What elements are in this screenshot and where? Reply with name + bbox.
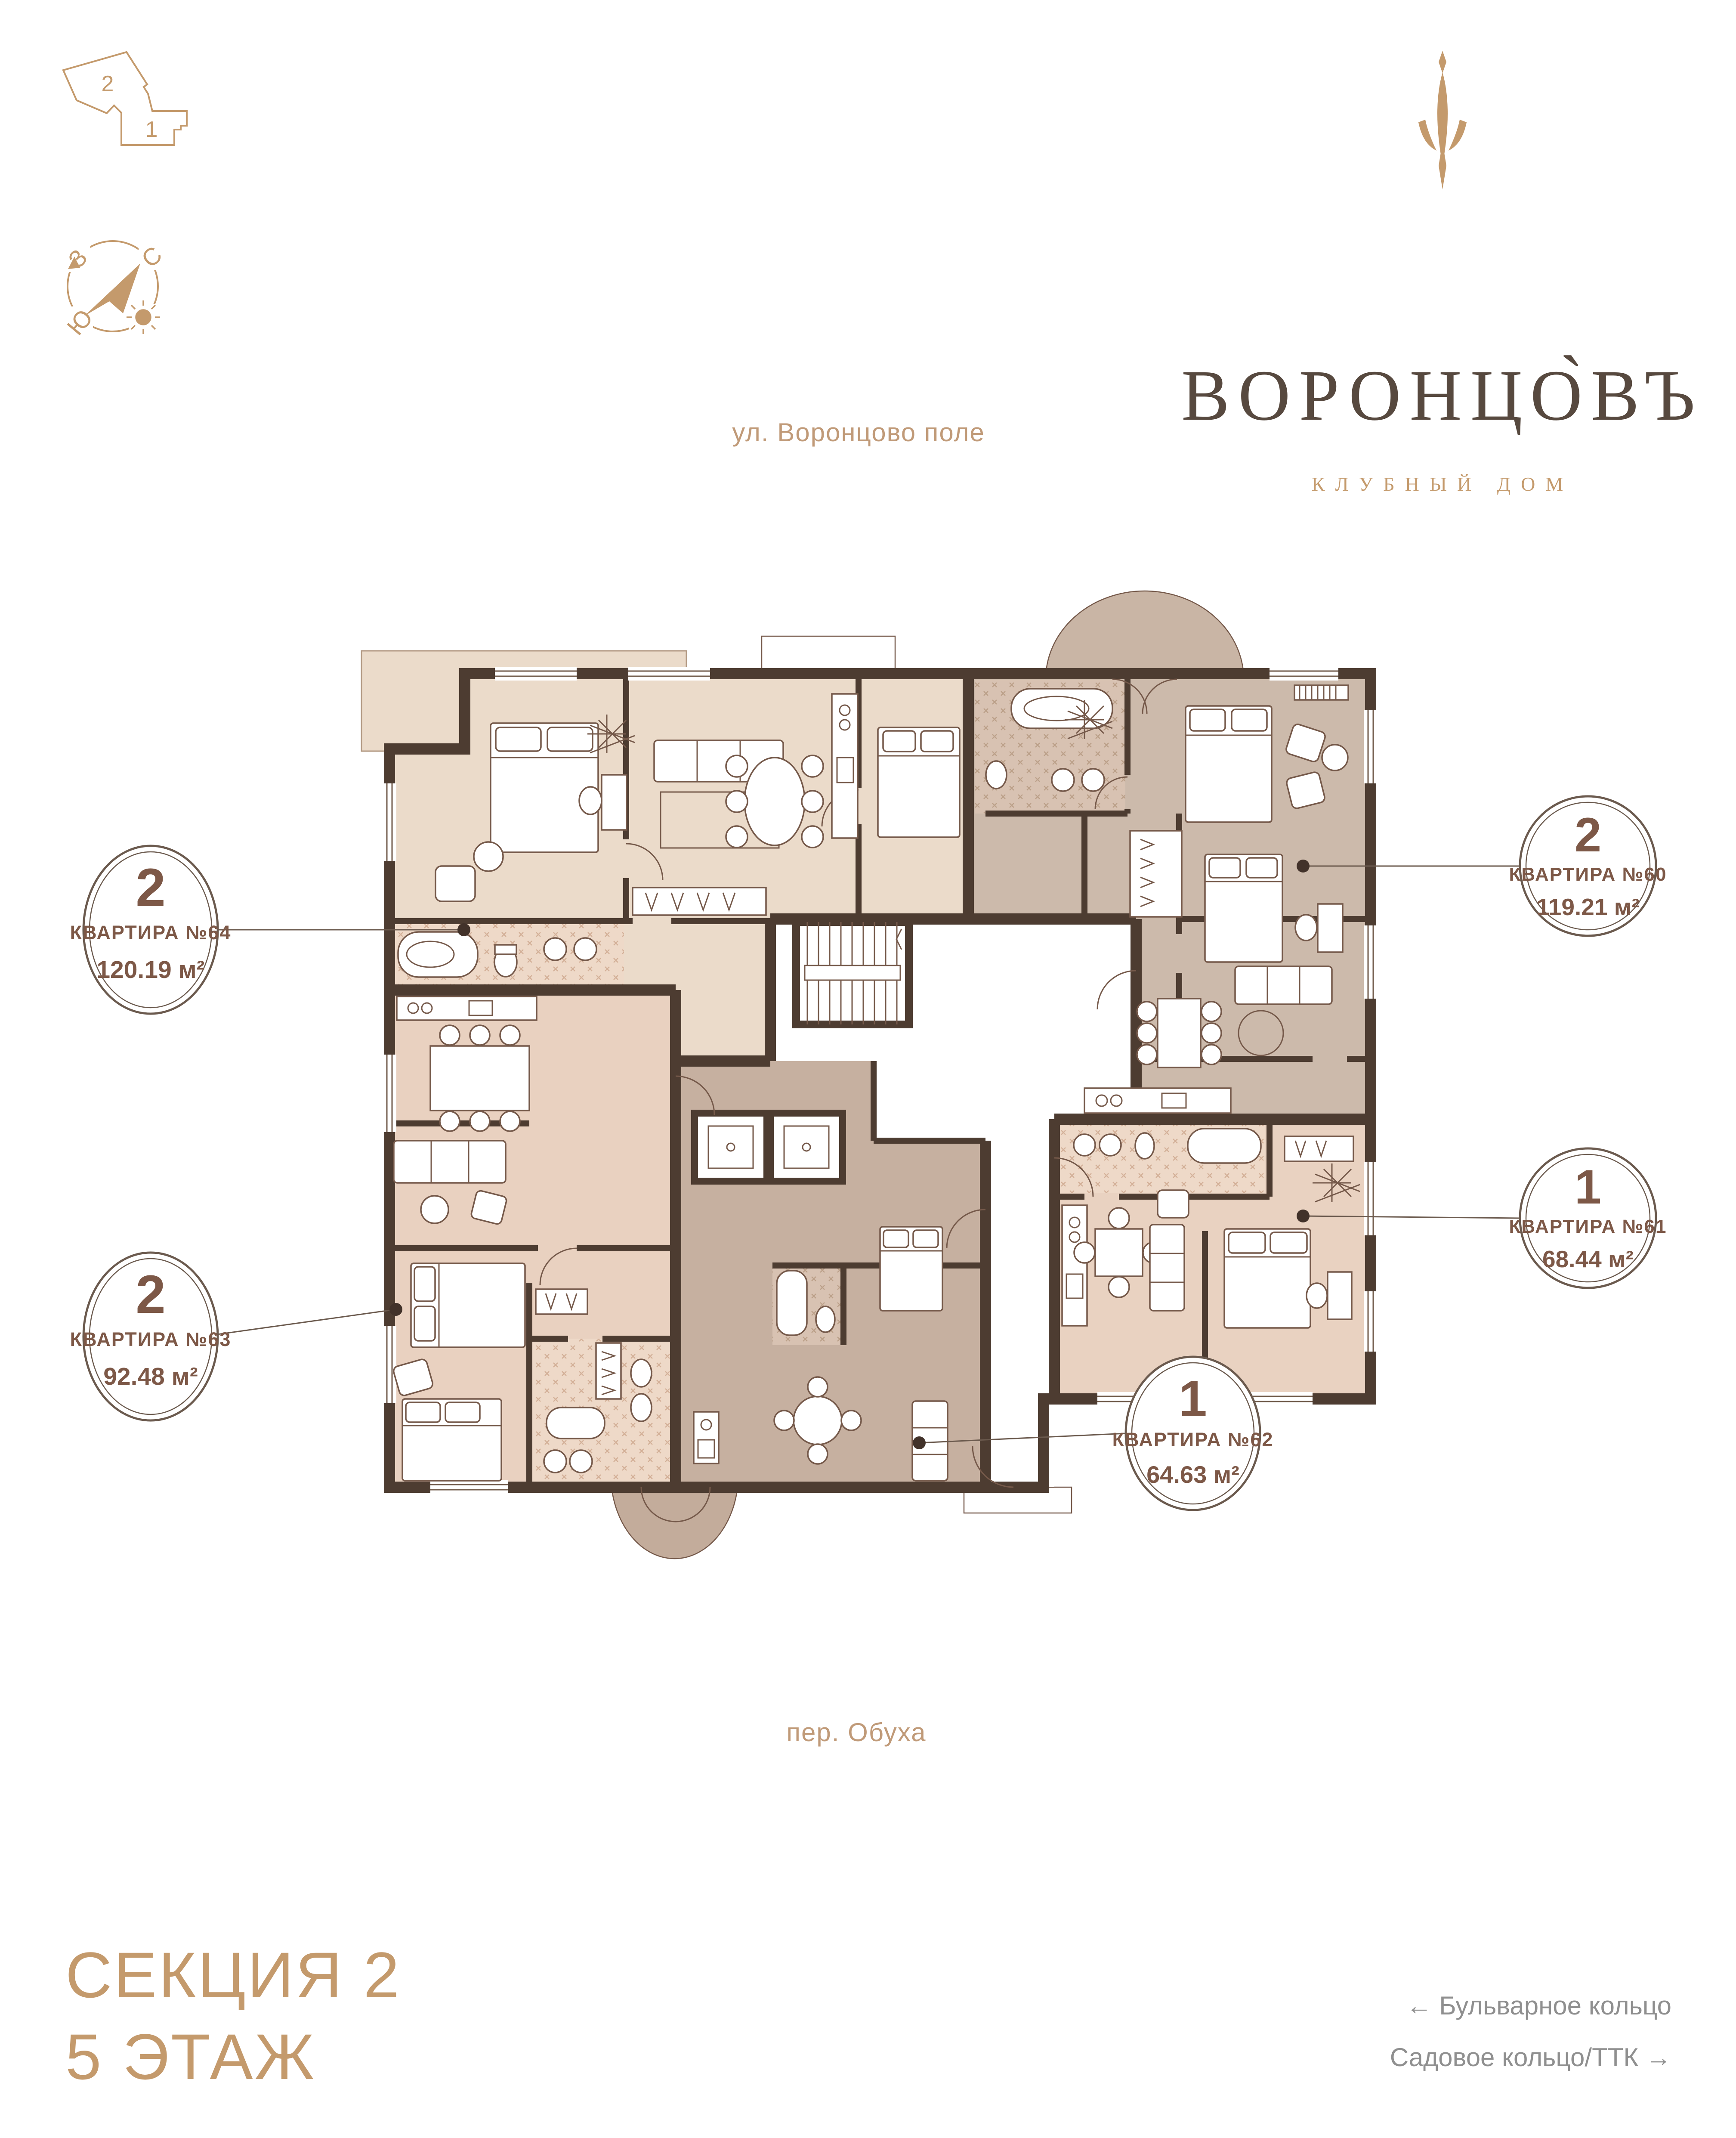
svg-text:1: 1	[1179, 1371, 1207, 1427]
logo-subtitle: КЛУБНЫЙ ДОМ	[1312, 473, 1573, 495]
svg-text:2: 2	[136, 1265, 166, 1324]
direction-bulvarnoe: ← Бульварное кольцо	[1406, 1991, 1671, 2020]
compass: З С Ю	[62, 241, 167, 340]
callout-apt63[interactable]: 2 КВАРТИРА №63 92.48 м²	[70, 1253, 402, 1420]
svg-text:КВАРТИРА №61: КВАРТИРА №61	[1509, 1216, 1667, 1237]
svg-text:120.19 м²: 120.19 м²	[96, 956, 204, 984]
minimap-outline	[63, 52, 187, 145]
footer: СЕКЦИЯ 2 5 ЭТАЖ ← Бульварное кольцо Садо…	[65, 1939, 1671, 2093]
street-label-bottom: пер. Обуха	[787, 1718, 927, 1747]
svg-text:КВАРТИРА №62: КВАРТИРА №62	[1112, 1429, 1274, 1451]
elevator	[770, 1113, 843, 1181]
minimap: 2 1	[63, 52, 187, 145]
brand-logo: ВОРОНЦО̀ВЪ КЛУБНЫЙ ДОМ	[1181, 51, 1704, 495]
street-label-top: ул. Воронцово поле	[732, 418, 985, 447]
svg-text:2: 2	[1575, 808, 1601, 862]
leader-dot-apt60	[1297, 860, 1310, 873]
svg-text:2: 2	[136, 858, 166, 918]
balcony-dome-top	[1046, 591, 1244, 679]
minimap-section-2: 2	[102, 71, 114, 96]
svg-text:92.48 м²: 92.48 м²	[103, 1363, 198, 1390]
svg-text:КВАРТИРА №64: КВАРТИРА №64	[70, 922, 232, 944]
svg-text:64.63 м²: 64.63 м²	[1146, 1461, 1239, 1488]
leader-dot-apt63	[389, 1303, 402, 1316]
logo-icon	[1418, 51, 1467, 189]
balcony-bottom	[611, 1482, 738, 1559]
minimap-section-1: 1	[145, 117, 158, 142]
leader-apt63	[217, 1309, 396, 1334]
svg-text:КВАРТИРА №63: КВАРТИРА №63	[70, 1328, 232, 1350]
svg-text:119.21 м²: 119.21 м²	[1536, 894, 1639, 920]
direction-sadovoe: Садовое кольцо/ТТК →	[1390, 2043, 1671, 2072]
elevator	[695, 1113, 767, 1181]
leader-dot-apt62	[913, 1436, 926, 1449]
sun-icon	[127, 300, 160, 334]
leader-dot-apt61	[1297, 1210, 1310, 1222]
stairs	[796, 922, 909, 1024]
leader-dot-apt64	[457, 923, 470, 936]
section-title: СЕКЦИЯ 2	[65, 1939, 401, 2011]
svg-text:1: 1	[1575, 1160, 1601, 1214]
svg-text:КВАРТИРА №60: КВАРТИРА №60	[1509, 864, 1667, 885]
floor-title: 5 ЭТАЖ	[65, 2020, 316, 2093]
logo-title: ВОРОНЦО̀ВЪ	[1181, 356, 1704, 436]
svg-text:68.44 м²: 68.44 м²	[1542, 1246, 1634, 1272]
floor-plan-page: ВОРОНЦО̀ВЪ КЛУБНЫЙ ДОМ 2 1 З С Ю ул. Вор…	[0, 0, 1736, 2138]
